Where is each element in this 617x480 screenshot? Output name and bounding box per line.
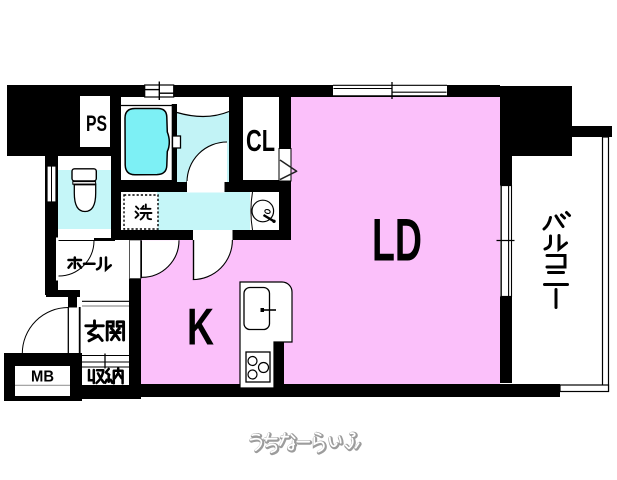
svg-text:CL: CL [246,123,275,158]
svg-text:PS: PS [86,111,107,136]
svg-text:MB: MB [31,369,54,386]
svg-text:LD: LD [372,207,422,274]
svg-text:K: K [187,299,214,357]
